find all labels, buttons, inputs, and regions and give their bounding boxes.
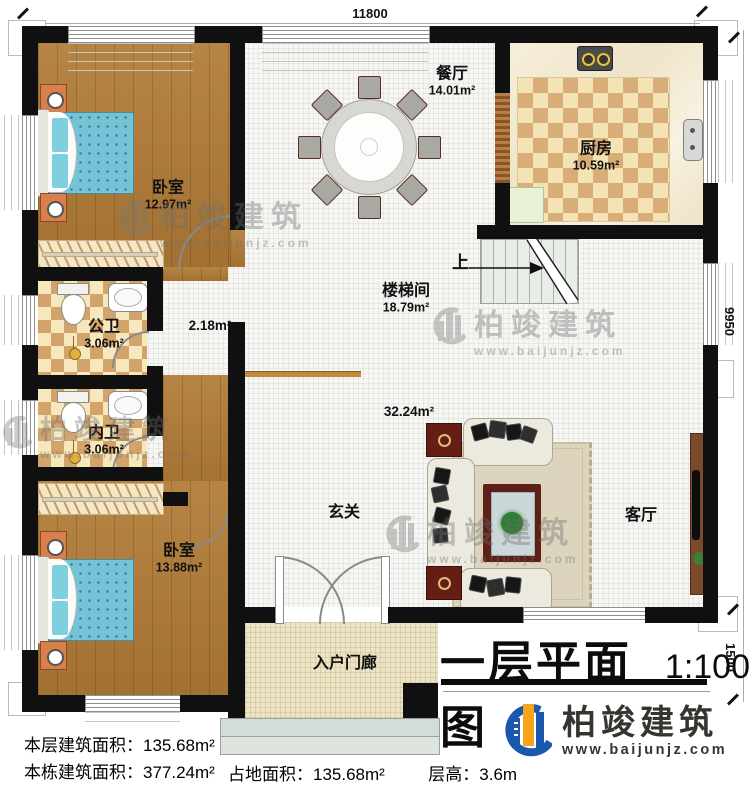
company-logo-icon: [502, 700, 552, 764]
window-sill: [85, 712, 180, 724]
window-sill: [4, 555, 22, 650]
room-label-living: 客厅: [625, 507, 657, 525]
corridor-floor-top: [163, 267, 228, 281]
room-label-foyer: 玄关: [328, 504, 360, 522]
wall-segment: [495, 183, 510, 225]
room-name: 楼梯间: [382, 283, 430, 301]
side-table: [426, 566, 462, 600]
room-label-bath-public: 公卫 3.06m²: [84, 319, 124, 352]
room-name: 入户门廊: [313, 655, 377, 673]
room-label-kitchen: 厨房 10.59m²: [573, 141, 620, 174]
wall-segment: [22, 210, 38, 295]
coffee-table: [483, 484, 541, 562]
wall-segment: [703, 345, 718, 607]
lamp-icon: [47, 539, 64, 556]
room-area: 32.24m²: [384, 404, 434, 420]
burner: [597, 53, 610, 66]
dining-set: [298, 76, 438, 216]
porch-step: [220, 736, 440, 755]
kitchen-door: [495, 93, 510, 183]
dimension-line-right: [743, 30, 744, 702]
cushion: [486, 578, 506, 598]
wall-segment: [388, 607, 523, 623]
stairs-up-label: 上: [452, 248, 469, 273]
wardrobe-rod: [42, 497, 158, 502]
stove-icon: [577, 46, 613, 71]
cushion: [431, 485, 450, 504]
stat-value: 135.68m²: [143, 736, 215, 755]
side-table: [426, 423, 462, 457]
dim-tick: [17, 7, 29, 19]
window: [68, 26, 195, 43]
stat-building-area: 本栋建筑面积：377.24m²: [24, 758, 215, 783]
dimension-line-top: [45, 23, 700, 24]
wall-segment: [22, 26, 38, 115]
room-area: 14.01m²: [429, 84, 476, 98]
stairs-break-and-arrow: [455, 236, 585, 308]
cushion: [504, 576, 522, 594]
room-name: 厨房: [573, 141, 620, 159]
floor-drain-icon: [69, 348, 81, 360]
kitchen-counter: [506, 187, 544, 223]
window: [703, 80, 718, 185]
wardrobe-rod: [42, 252, 158, 257]
kitchen-sink-icon: [683, 119, 703, 161]
window: [22, 555, 38, 652]
wall-segment: [22, 267, 163, 281]
dim-tick: [696, 5, 708, 17]
wall-segment: [230, 43, 245, 230]
wall-segment: [495, 43, 510, 93]
room-label-bedroom1: 卧室 12.97m²: [145, 180, 192, 213]
window: [703, 263, 718, 347]
entry-door-leaf: [275, 556, 284, 624]
cushion: [432, 527, 448, 543]
room-name: 客厅: [625, 507, 657, 525]
stat-value: 377.24m²: [143, 763, 215, 782]
window-sill: [4, 295, 22, 345]
window: [22, 115, 38, 212]
plant-icon: [501, 512, 523, 534]
room-area: 10.59m²: [573, 159, 620, 173]
room-label-porch: 入户门廊: [313, 655, 377, 673]
dining-chair: [298, 136, 321, 159]
stat-label: 本栋建筑面积：: [24, 763, 143, 782]
table-ornament-icon: [438, 434, 451, 447]
stat-value: 135.68m²: [313, 765, 385, 784]
stat-label: 本层建筑面积：: [24, 736, 143, 755]
dim-box: [716, 360, 734, 398]
tv-icon: [692, 470, 700, 540]
pillow: [51, 153, 69, 189]
room-label-bedroom2: 卧室 13.88m²: [156, 543, 203, 576]
lazy-susan: [360, 138, 378, 156]
porch-step: [220, 718, 440, 738]
sink-icon: [108, 391, 148, 420]
wall-segment: [163, 492, 188, 506]
wall-segment: [703, 183, 718, 263]
wall-segment: [193, 26, 262, 43]
stat-floor-area: 本层建筑面积：135.68m²: [24, 731, 215, 756]
floor-drain-icon: [69, 452, 81, 464]
wall-segment: [645, 607, 718, 623]
cushion: [469, 575, 488, 594]
faucet-knob: [690, 128, 695, 133]
wall-segment: [477, 225, 718, 239]
room-name: 玄关: [328, 504, 360, 522]
burner: [582, 53, 595, 66]
room-label-bath-private: 内卫 3.06m²: [84, 425, 124, 458]
wall-segment: [22, 695, 85, 712]
floor-transition-line: [245, 371, 361, 377]
sink-icon: [108, 283, 148, 312]
wall-segment: [22, 467, 163, 481]
pillow: [51, 600, 69, 636]
window-sill: [4, 115, 22, 210]
nightstand: [40, 641, 67, 670]
wardrobe: [38, 240, 164, 269]
room-area: 18.79m²: [382, 301, 430, 315]
wall-segment: [703, 26, 718, 80]
room-area: 13.88m²: [156, 561, 203, 575]
dimension-top: 11800: [340, 6, 400, 21]
wall-segment: [245, 607, 275, 623]
floor-plan-canvas: 上: [0, 0, 750, 793]
corridor-floor: [163, 375, 228, 492]
room-area: 2.18m²: [189, 318, 232, 334]
stat-value: 3.6m: [479, 765, 517, 784]
window-sill: [4, 400, 22, 455]
wardrobe: [38, 483, 164, 515]
window: [262, 26, 430, 43]
wall-segment: [147, 281, 163, 331]
title-underline: [441, 679, 707, 685]
lamp-icon: [47, 201, 64, 218]
cushion: [433, 467, 452, 486]
dining-chair: [358, 76, 381, 99]
sink-basin: [114, 396, 142, 415]
room-area: 3.06m²: [84, 337, 124, 351]
faucet-knob: [690, 145, 695, 150]
wall-segment: [22, 375, 163, 389]
room-label-stairwell: 楼梯间 18.79m²: [382, 283, 430, 316]
wall-segment: [228, 322, 245, 718]
dining-chair: [358, 196, 381, 219]
sink-basin: [114, 288, 142, 307]
room-name: 公卫: [84, 319, 124, 337]
pillow: [51, 117, 69, 153]
dining-chair: [418, 136, 441, 159]
stat-ground-area: 占地面积：135.68m² 层高：3.6m: [228, 760, 517, 785]
stat-label: 占地面积：: [228, 765, 313, 784]
living-area-label: 32.24m²: [384, 404, 434, 420]
cushion: [488, 420, 507, 439]
bedroom1-door-threshold: [230, 230, 245, 267]
nightstand: [40, 193, 67, 222]
window-sill: [718, 80, 734, 183]
window: [22, 295, 38, 347]
pillow: [51, 564, 69, 600]
wall-segment: [428, 26, 712, 43]
company-website: www.baijunjz.com: [562, 742, 727, 758]
porch-pillar: [403, 683, 438, 718]
window: [85, 695, 182, 712]
room-name: 卧室: [145, 180, 192, 198]
wall-segment: [22, 345, 38, 400]
room-name: 卧室: [156, 543, 203, 561]
room-area: 3.06m²: [84, 443, 124, 457]
title-underline-thin: [443, 691, 710, 692]
company-name: 柏竣建筑: [562, 706, 727, 742]
window-sill: [68, 43, 193, 71]
dimension-right-upper: 9950: [722, 307, 737, 336]
room-name: 内卫: [84, 425, 124, 443]
room-label-hallway: 2.18m²: [189, 318, 232, 334]
company-logo: 柏竣建筑 www.baijunjz.com: [502, 700, 727, 764]
room-area: 12.97m²: [145, 198, 192, 212]
lamp-icon: [47, 92, 64, 109]
stat-label: 层高：: [428, 765, 479, 784]
window-sill: [262, 43, 428, 71]
room-label-dining: 餐厅 14.01m²: [429, 66, 476, 99]
window: [22, 400, 38, 457]
window: [523, 607, 647, 623]
lamp-icon: [47, 649, 64, 666]
table-ornament-icon: [438, 577, 451, 590]
room-name: 餐厅: [429, 66, 476, 84]
